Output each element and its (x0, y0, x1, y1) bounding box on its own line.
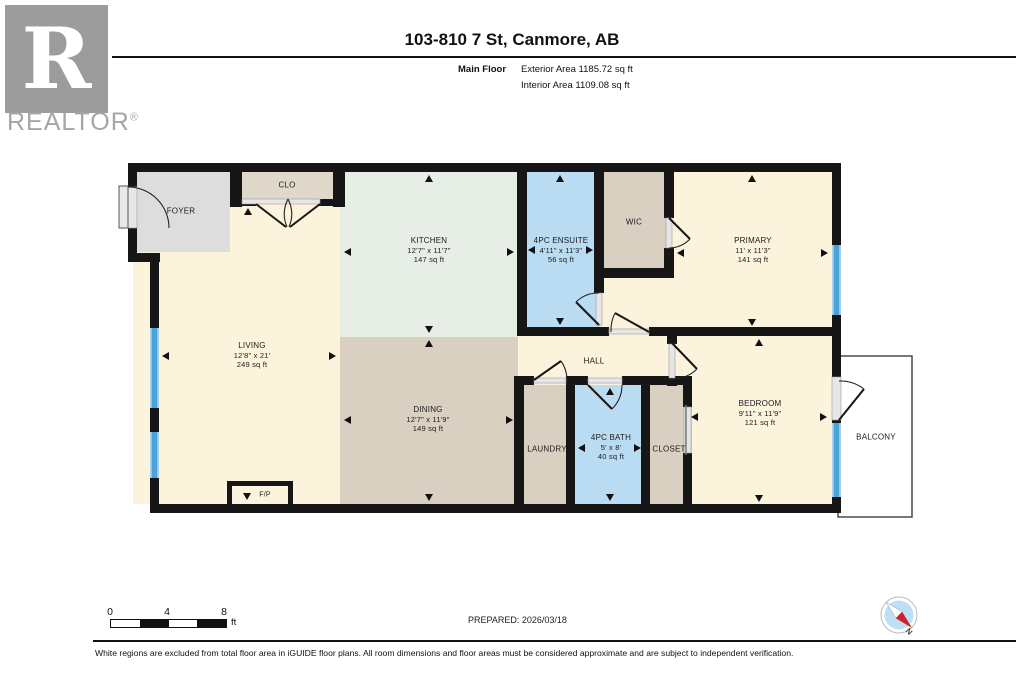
bath-name: 4PC BATH (591, 433, 631, 443)
scale-tick-4: 4 (164, 606, 170, 618)
room-label-bedroom: BEDROOM 9'11" x 11'9" 121 sq ft (739, 399, 782, 428)
scale-tick-0: 0 (107, 606, 113, 618)
room-label-closet: CLOSET (652, 444, 685, 454)
room-label-dining: DINING 12'7" x 11'9" 149 sq ft (406, 405, 449, 434)
bedroom-name: BEDROOM (739, 399, 782, 409)
closet-name: CLOSET (652, 444, 685, 454)
bedroom-area: 121 sq ft (739, 418, 782, 428)
room-label-bath: 4PC BATH 5' x 8' 40 sq ft (591, 433, 631, 462)
floor-plan (0, 0, 1024, 699)
room-label-foyer: FOYER (167, 206, 196, 216)
living-dims: 12'8" x 21' (234, 350, 271, 360)
ensuite-dims: 4'11" x 11'3" (534, 245, 589, 255)
disclaimer-text: White regions are excluded from total fl… (95, 648, 793, 658)
bath-area: 40 sq ft (591, 452, 631, 462)
room-label-ensuite: 4PC ENSUITE 4'11" x 11'3" 56 sq ft (534, 236, 589, 265)
prepared-date: PREPARED: 2026/03/18 (468, 615, 567, 625)
kitchen-area: 147 sq ft (407, 255, 450, 265)
scale-unit: ft (231, 617, 236, 628)
footer-divider (93, 640, 1016, 642)
dining-name: DINING (406, 405, 449, 415)
dining-dims: 12'7" x 11'9" (406, 414, 449, 424)
kitchen-name: KITCHEN (407, 236, 450, 246)
fireplace-name: F/P (259, 490, 271, 500)
dining-area: 149 sq ft (406, 424, 449, 434)
living-name: LIVING (234, 341, 271, 351)
bath-dims: 5' x 8' (591, 442, 631, 452)
foyer-name: FOYER (167, 206, 196, 216)
room-label-wic: WIC (626, 217, 642, 227)
wic-name: WIC (626, 217, 642, 227)
balcony-name: BALCONY (856, 432, 896, 442)
ensuite-area: 56 sq ft (534, 255, 589, 265)
room-label-living: LIVING 12'8" x 21' 249 sq ft (234, 341, 271, 370)
scale-bar (110, 619, 227, 628)
room-fills (133, 172, 832, 504)
primary-area: 141 sq ft (734, 255, 772, 265)
room-label-kitchen: KITCHEN 12'7" x 11'7" 147 sq ft (407, 236, 450, 265)
living-area: 249 sq ft (234, 360, 271, 370)
room-label-hall: HALL (584, 356, 605, 366)
bedroom-dims: 9'11" x 11'9" (739, 408, 782, 418)
clo-name: CLO (278, 180, 295, 190)
room-label-laundry: LAUNDRY (527, 444, 567, 454)
room-label-fireplace: F/P (259, 490, 271, 500)
ensuite-name: 4PC ENSUITE (534, 236, 589, 246)
hall-name: HALL (584, 356, 605, 366)
scale-tick-8: 8 (221, 606, 227, 618)
room-label-balcony: BALCONY (856, 432, 896, 442)
laundry-name: LAUNDRY (527, 444, 567, 454)
kitchen-dims: 12'7" x 11'7" (407, 245, 450, 255)
primary-dims: 11' x 11'3" (734, 245, 772, 255)
room-label-primary: PRIMARY 11' x 11'3" 141 sq ft (734, 236, 772, 265)
primary-name: PRIMARY (734, 236, 772, 246)
room-label-clo: CLO (278, 180, 295, 190)
